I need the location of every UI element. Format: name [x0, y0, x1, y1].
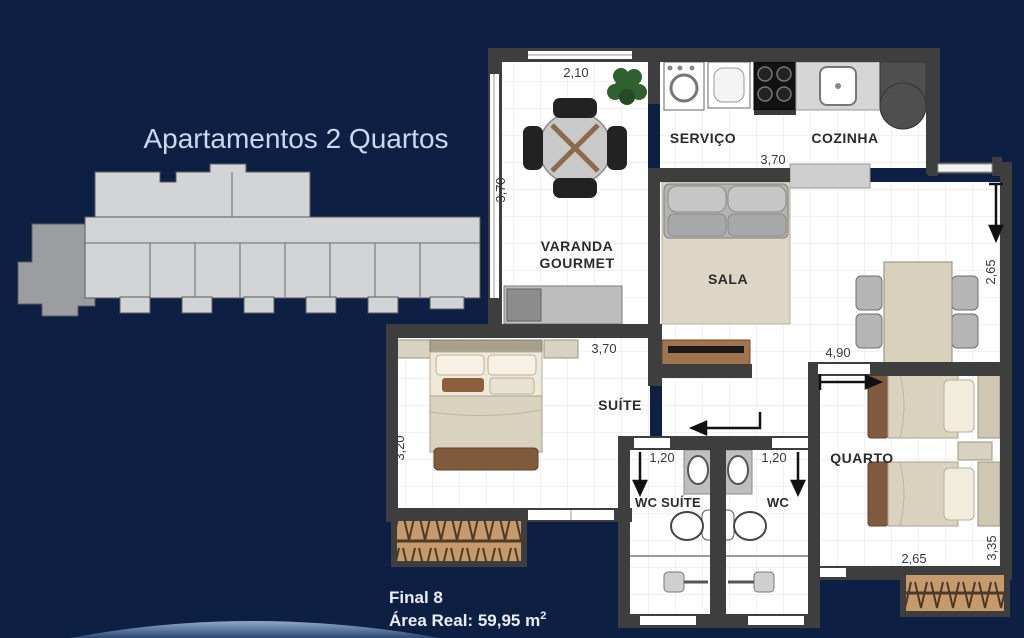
dim-wc-width: 1,20 — [761, 450, 786, 465]
shower-handle — [664, 572, 684, 592]
area-label: Área Real: 59,95 m2 — [389, 610, 546, 630]
dim-varanda-depth: 3,70 — [493, 177, 508, 202]
room-label-servico: SERVIÇO — [670, 130, 736, 146]
dim-suite-width: 3,70 — [591, 341, 616, 356]
grill — [507, 289, 541, 321]
dim-varanda-width: 2,10 — [563, 65, 588, 80]
dim-cozinha-width: 3,70 — [760, 152, 785, 167]
dim-suite-depth: 3,20 — [392, 435, 407, 460]
entry-door — [938, 164, 992, 172]
room-label-varanda-line2: GOURMET — [539, 255, 614, 271]
room-label-wc-suite: WC SUÍTE — [635, 495, 701, 510]
room-label-quarto: QUARTO — [830, 450, 893, 466]
dim-quarto-width: 2,65 — [901, 551, 926, 566]
page-title: Apartamentos 2 Quartos — [143, 123, 448, 154]
nightstand — [396, 340, 430, 358]
apartment-floorplan-page: Apartamentos 2 Quartos — [0, 0, 1024, 638]
key-plan-upper-block — [95, 164, 310, 217]
single-bed-2 — [868, 462, 1000, 526]
dim-dining-width: 4,90 — [825, 345, 850, 360]
nightstand — [958, 442, 992, 460]
toilet — [671, 512, 703, 540]
single-bed-1 — [868, 374, 1000, 438]
pass-through-counter — [790, 164, 870, 188]
room-label-sala: SALA — [708, 271, 748, 287]
key-plan-main-band — [85, 217, 480, 298]
tv — [668, 346, 744, 353]
unit-label: Final 8 — [389, 588, 443, 607]
room-label-varanda-line1: VARANDA — [541, 238, 613, 254]
room-label-cozinha: COZINHA — [811, 130, 878, 146]
dim-quarto-depth: 3,35 — [984, 535, 999, 560]
toilet — [734, 512, 766, 540]
dim-wc-suite-width: 1,20 — [649, 450, 674, 465]
nightstand — [544, 340, 578, 358]
shower-handle — [754, 572, 774, 592]
room-label-suite: SUÍTE — [598, 397, 642, 413]
room-label-wc: WC — [767, 495, 790, 510]
dining-table — [884, 262, 952, 366]
double-bed — [430, 340, 542, 470]
dim-dining-depth: 2,65 — [983, 259, 998, 284]
